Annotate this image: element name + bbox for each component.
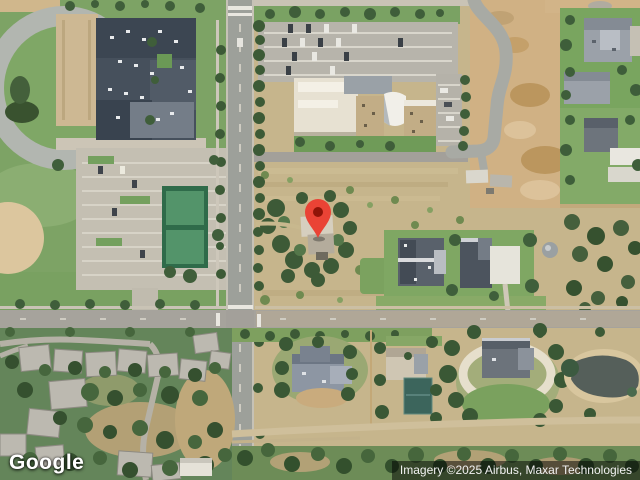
satellite-imagery (0, 0, 640, 480)
map-viewport[interactable]: Google Imagery ©2025 Airbus, Maxar Techn… (0, 0, 640, 480)
imagery-attribution: Imagery ©2025 Airbus, Maxar Technologies (392, 461, 640, 480)
google-logo[interactable]: Google (9, 451, 84, 475)
map-pin-dot (313, 207, 323, 217)
